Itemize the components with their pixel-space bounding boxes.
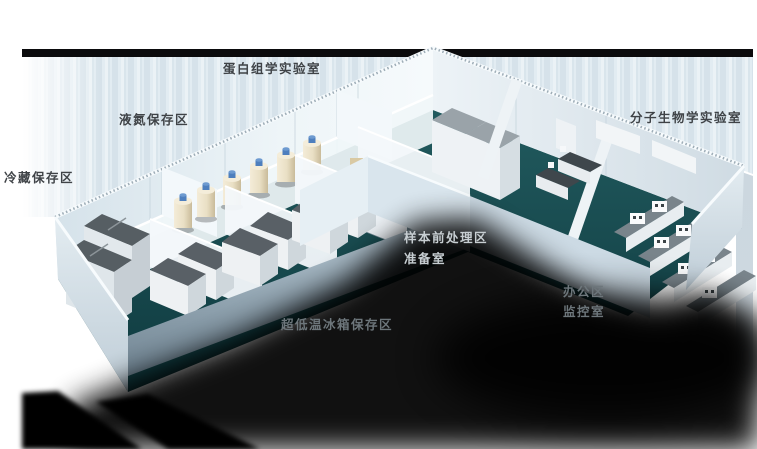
top-edge-bar [22,49,753,57]
lab-floorplan-scene: 蛋白组学实验室 液氮保存区 冷藏保存区 分子生物学实验室 样本前处理区 准备室 … [0,0,757,449]
floorplan-render [0,0,757,449]
backdrop-fade [22,57,102,217]
